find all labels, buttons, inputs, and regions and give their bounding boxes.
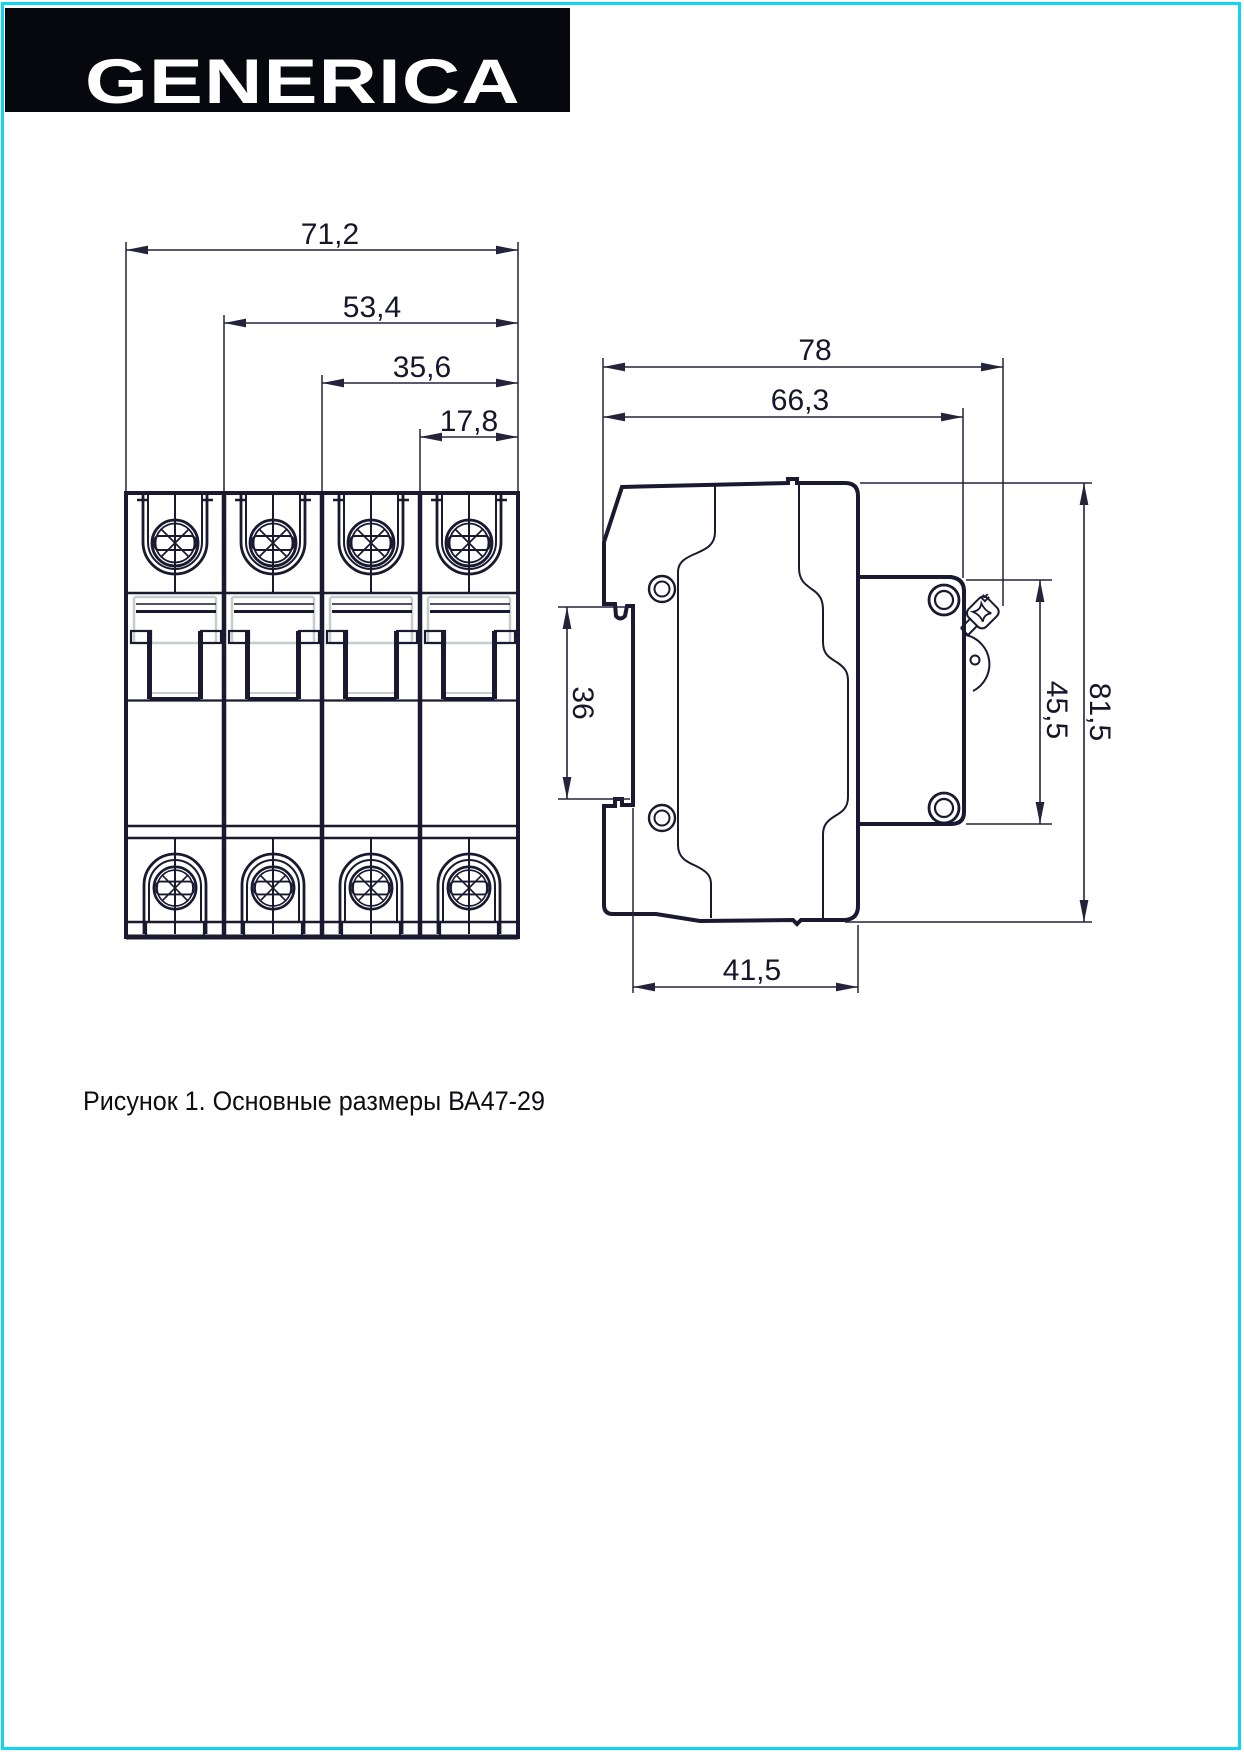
dim-label-three-pole-width: 53,4 [343,291,401,324]
dim-label-base-depth: 41,5 [723,954,781,987]
front-extension-lines [126,242,518,491]
dim-label-front-part-height: 45,5 [1040,681,1073,739]
side-extension-lines [558,358,1092,993]
dim-label-din-recess: 36 [566,686,599,719]
toggle-pivot-hole [971,656,980,665]
side-body-outline [604,479,858,924]
dim-label-overall-height: 81,5 [1083,683,1116,741]
datasheet-page: GENERICA [0,0,1244,1752]
dim-label-depth-to-face: 66,3 [771,384,829,417]
dim-label-two-pole-width: 35,6 [393,351,451,384]
figure-caption: Рисунок 1. Основные размеры ВА47-29 [83,1086,545,1117]
dim-label-one-pole-width: 17,8 [440,405,498,438]
dim-label-overall-depth: 78 [798,334,831,367]
side-dimensions: 78 66,3 36 45,5 81,5 41,5 [566,334,1116,987]
front-view: 71,2 53,4 35,6 17,8 [126,218,518,937]
side-view: 78 66,3 36 45,5 81,5 41,5 [558,334,1116,993]
dim-label-overall-width: 71,2 [301,218,359,251]
dimension-drawing: 71,2 53,4 35,6 17,8 [0,0,1244,1060]
mould-seam-left [678,485,715,918]
mould-seam-right [799,485,848,918]
screw-bosses [649,576,959,831]
